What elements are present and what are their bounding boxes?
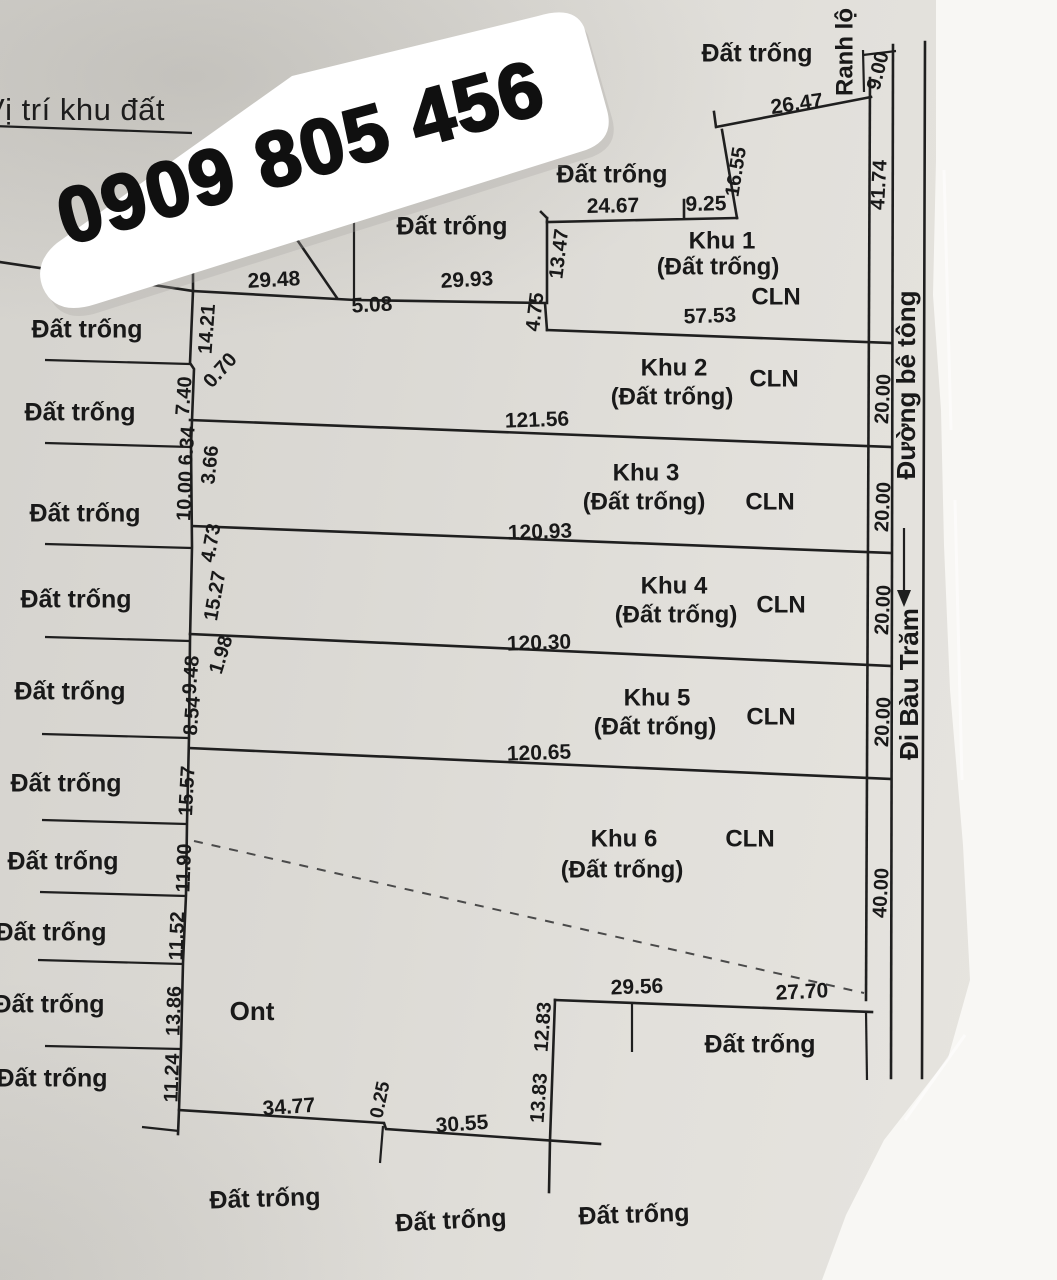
khu-5-landuse: CLN bbox=[746, 703, 795, 730]
dim-14-21: 14.21 bbox=[195, 303, 220, 354]
dat-trong-left-6: Đất trống bbox=[10, 770, 121, 798]
khu-6-name: Khu 6 bbox=[591, 825, 658, 852]
dim-8-54: 8.54 bbox=[180, 695, 205, 737]
khu-6-landuse: CLN bbox=[725, 825, 774, 852]
dim-13-47: 13.47 bbox=[545, 228, 573, 280]
dim-27-70: 27.70 bbox=[775, 979, 829, 1005]
khu-2-status: (Đất trống) bbox=[611, 383, 734, 410]
dat-trong-top-2: Đất trống bbox=[556, 161, 667, 189]
land-survey-document: Vị trí khu đất bbox=[0, 0, 1057, 1280]
khu6-dashed-line bbox=[194, 841, 864, 993]
dim-13-83: 13.83 bbox=[527, 1072, 552, 1123]
dim-9-25: 9.25 bbox=[685, 192, 727, 216]
dim-11-24: 11.24 bbox=[160, 1052, 184, 1103]
dat-trong-bottom-1: Đất trống bbox=[209, 1183, 321, 1215]
dat-trong-top-1: Đất trống bbox=[701, 40, 812, 68]
road-label-duong-be-tong: Đường bê tông bbox=[891, 291, 921, 480]
dim-120-30: 120.30 bbox=[506, 630, 571, 655]
dim-29-48: 29.48 bbox=[247, 267, 301, 293]
khu-2-name: Khu 2 bbox=[641, 354, 708, 381]
dim-20-00-khu3: 20.00 bbox=[871, 481, 896, 532]
road-parcel-boundary bbox=[866, 78, 870, 1000]
dim-24-67: 24.67 bbox=[587, 194, 640, 218]
dim-20-00-khu4: 20.00 bbox=[871, 584, 896, 635]
dim-10-00: 10.00 bbox=[173, 470, 198, 521]
dim-1-98: 1.98 bbox=[205, 633, 237, 677]
dat-trong-notch: Đất trống bbox=[704, 1031, 815, 1059]
title-underline bbox=[0, 126, 192, 133]
dim-34-77: 34.77 bbox=[262, 1094, 316, 1121]
dat-trong-left-9: Đất trống bbox=[0, 991, 105, 1019]
dim-0-70: 0.70 bbox=[199, 349, 241, 393]
dat-trong-bottom-3: Đất trống bbox=[578, 1199, 690, 1231]
dim-9-48: 9.48 bbox=[179, 655, 204, 696]
dim-11-52: 11.52 bbox=[165, 911, 189, 961]
south-jog-tick bbox=[380, 1126, 383, 1163]
khu1-west-line bbox=[541, 212, 547, 303]
dim-29-56: 29.56 bbox=[610, 975, 663, 1000]
khu-1-status: (Đất trống) bbox=[657, 253, 780, 280]
dat-trong-bottom-2: Đất trống bbox=[395, 1204, 507, 1238]
road-edge-right bbox=[922, 42, 925, 1078]
khu-4-landuse: CLN bbox=[756, 591, 805, 618]
dat-trong-left-5: Đất trống bbox=[14, 678, 125, 706]
khu-3-landuse: CLN bbox=[745, 488, 794, 515]
row-line-57-53 bbox=[547, 330, 891, 343]
khu-3-status: (Đất trống) bbox=[583, 488, 706, 515]
dat-trong-left-10: Đất trống bbox=[0, 1065, 108, 1093]
dim-29-93: 29.93 bbox=[440, 267, 494, 293]
road-edge-left bbox=[891, 45, 893, 1078]
dim-40-00: 40.00 bbox=[869, 867, 894, 918]
khu-6-status: (Đất trống) bbox=[561, 856, 684, 883]
paper-fold-strip bbox=[822, 0, 1057, 1280]
road-label-ranh-lo: Ranh lộ bbox=[831, 8, 858, 96]
dat-trong-left-7: Đất trống bbox=[7, 848, 118, 876]
khu-1-name: Khu 1 bbox=[689, 227, 756, 254]
dat-trong-left-3: Đất trống bbox=[29, 500, 140, 528]
dim-121-56: 121.56 bbox=[504, 407, 569, 432]
khu-5-name: Khu 5 bbox=[624, 684, 691, 711]
dim-7-40: 7.40 bbox=[172, 376, 197, 416]
dim-120-65: 120.65 bbox=[506, 740, 571, 765]
ont-label: Ont bbox=[230, 996, 275, 1026]
dim-12-83: 12.83 bbox=[531, 1001, 556, 1052]
dim-9-00: 9.00 bbox=[863, 49, 894, 92]
dim-20-00-khu5: 20.00 bbox=[871, 696, 896, 747]
dim-6-34: 6.34 bbox=[175, 425, 200, 466]
dim-57-53: 57.53 bbox=[683, 304, 736, 329]
survey-diagram: Đất trốngĐất trốngĐất trốngĐất trốngĐất … bbox=[0, 0, 1057, 1280]
dat-trong-top-3: Đất trống bbox=[396, 213, 507, 241]
dim-26-47: 26.47 bbox=[769, 89, 824, 119]
khu-4-status: (Đất trống) bbox=[615, 601, 738, 628]
khu-1-landuse: CLN bbox=[751, 283, 800, 310]
dat-trong-left-4: Đất trống bbox=[20, 586, 131, 614]
dim-13-86: 13.86 bbox=[162, 986, 186, 1037]
khu-4-name: Khu 4 bbox=[641, 572, 708, 599]
dim-4-75: 4.75 bbox=[522, 291, 549, 332]
dim-0-25: 0.25 bbox=[366, 1079, 394, 1120]
dat-trong-left-8: Đất trống bbox=[0, 919, 107, 947]
road-bottom-tick bbox=[866, 1011, 867, 1080]
road-label-di-bau-tram: Đi Bàu Trăm bbox=[894, 608, 924, 760]
khu-2-landuse: CLN bbox=[749, 365, 798, 392]
dat-trong-left-1: Đất trống bbox=[31, 316, 142, 344]
dim-15-57: 15.57 bbox=[175, 765, 200, 816]
khu-5-status: (Đất trống) bbox=[594, 713, 717, 740]
dat-trong-left-2: Đất trống bbox=[24, 399, 135, 427]
road-direction-arrow bbox=[897, 528, 911, 607]
dim-11-90: 11.90 bbox=[172, 843, 196, 893]
dim-120-93: 120.93 bbox=[507, 519, 572, 544]
dim-15-27: 15.27 bbox=[200, 569, 230, 622]
khu-3-name: Khu 3 bbox=[613, 459, 680, 486]
dim-5-08: 5.08 bbox=[351, 292, 393, 317]
dim-4-73: 4.73 bbox=[197, 522, 225, 564]
dim-30-55: 30.55 bbox=[435, 1111, 489, 1138]
dim-3-66: 3.66 bbox=[197, 444, 223, 485]
dim-41-74: 41.74 bbox=[867, 159, 892, 211]
